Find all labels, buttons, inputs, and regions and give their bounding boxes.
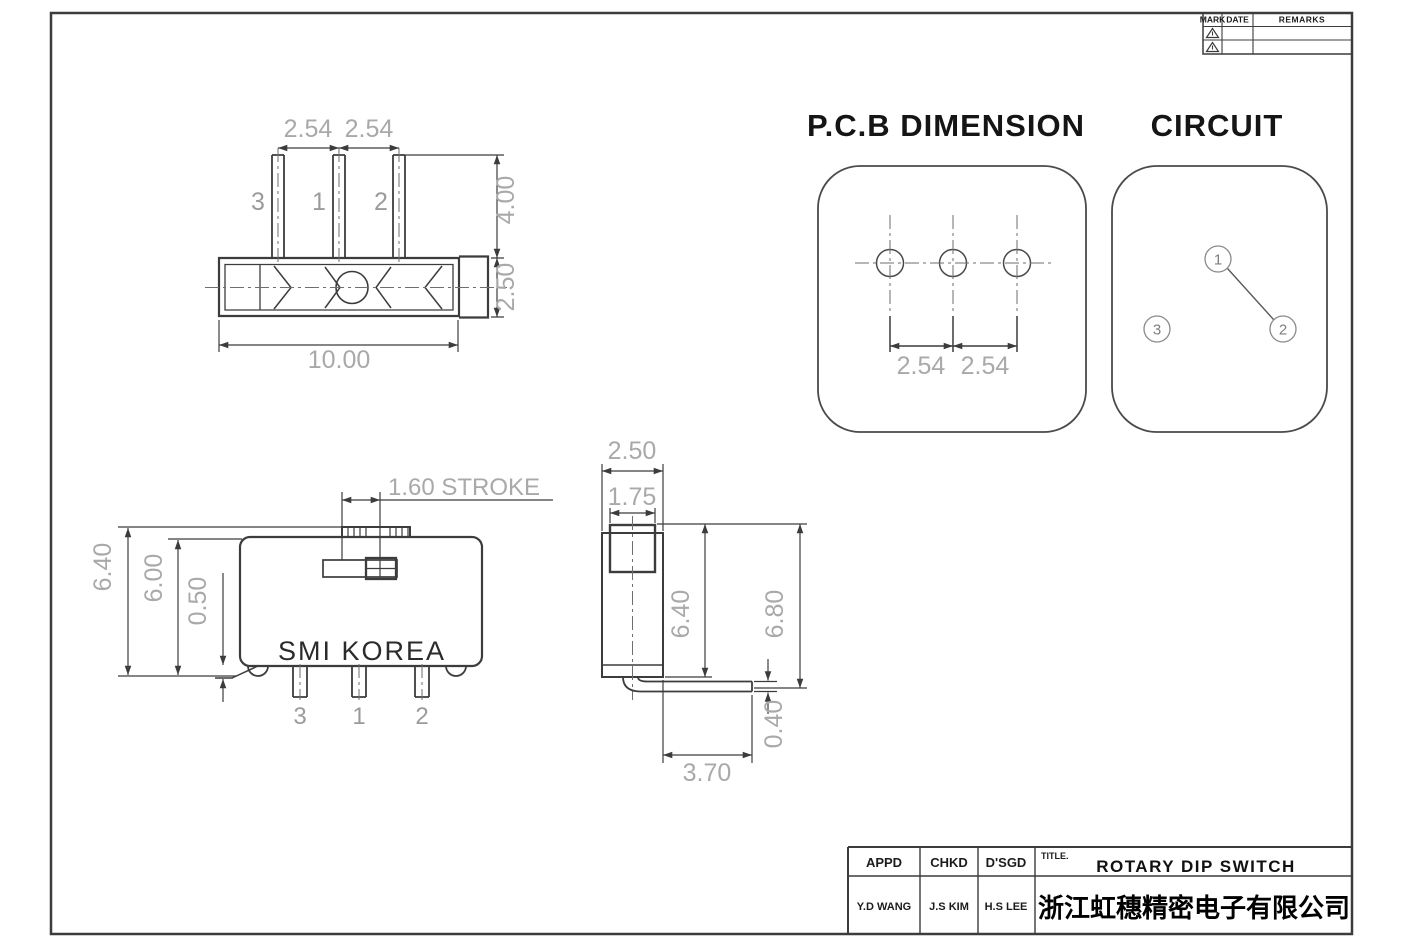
pin-label-3: 3 [251,188,265,216]
front-pin-label-2: 2 [415,703,428,730]
circuit-outline [1112,166,1327,432]
appd-label: APPD [866,855,902,870]
chkd-label: CHKD [930,855,968,870]
pcb-outline [818,166,1086,432]
circuit-title: CIRCUIT [1151,108,1284,143]
dim-side-height: 6.40 [667,590,695,639]
pcb-centerlines [855,215,1052,314]
brand-text: SMI KOREA [278,636,446,666]
dim-pitch-left: 2.54 [284,115,333,143]
dim-standoff: 0.50 [184,577,212,626]
revision-triangle-icon [1207,43,1219,52]
side-view: 2.50 1.75 6.40 6.80 0.40 3.70 [602,437,807,787]
front-pin-label-3: 3 [293,703,306,730]
dim-knob-width: 1.75 [608,483,657,511]
appd-name: Y.D WANG [857,901,911,913]
front-pin-label-1: 1 [352,703,365,730]
title-label: TITLE. [1041,851,1069,861]
pin-label-1: 1 [312,188,326,216]
rev-col-mark: MARK [1200,15,1226,25]
front-bottom-notches [248,666,466,676]
pcb-pitch-left: 2.54 [897,352,946,380]
sheet-border [51,13,1352,934]
dim-pitch-right: 2.54 [345,115,394,143]
dim-thickness: 2.50 [492,263,520,312]
front-pins [293,666,429,697]
dim-pin-height: 4.00 [492,176,520,225]
dim-pin-length: 3.70 [683,759,732,787]
dim-stroke: 1.60 STROKE [388,474,540,501]
chkd-name: J.S KIM [929,901,969,913]
drawing-sheet: MARK DATE REMARKS 2.54 2.54 3 1 2 4.00 2… [0,0,1407,944]
dsgd-label: D'SGD [986,855,1027,870]
dim-width: 10.00 [308,346,371,374]
terminal-1: 1 [1214,252,1222,269]
pcb-dimension-view: P.C.B DIMENSION 2.54 2.54 [807,108,1086,432]
top-view-centerlines [205,148,507,288]
side-pin-bend [623,677,752,692]
company-name: 浙江虹穗精密电子有限公司 [1038,893,1350,923]
dim-pin-thickness: 0.40 [760,700,788,749]
rev-col-remarks: REMARKS [1279,15,1325,25]
front-knob [342,527,410,537]
pcb-title: P.C.B DIMENSION [807,108,1085,143]
revision-triangle-icon [1207,29,1219,38]
dim-body-height: 6.00 [140,554,168,603]
front-view: SMI KOREA 1.60 STROKE 6.40 6.00 0.50 3 1… [89,474,553,730]
circuit-view: CIRCUIT 1 3 2 [1112,108,1327,432]
dim-side-width: 2.50 [608,437,657,465]
dsgd-name: H.S LEE [985,901,1028,913]
terminal-2: 2 [1279,322,1287,339]
title-block: APPD CHKD D'SGD TITLE. ROTARY DIP SWITCH… [848,847,1352,935]
drawing-title: ROTARY DIP SWITCH [1096,857,1296,876]
pin-label-2: 2 [374,188,388,216]
pcb-pitch-right: 2.54 [961,352,1010,380]
front-knob-ridges [348,527,408,536]
dim-total-height: 6.40 [89,543,117,592]
dim-side-total-height: 6.80 [761,590,789,639]
circuit-switch-line [1228,269,1274,320]
drawing-canvas: MARK DATE REMARKS 2.54 2.54 3 1 2 4.00 2… [0,0,1407,944]
front-pin-centerlines [300,664,422,700]
top-view: 2.54 2.54 3 1 2 4.00 2.50 10.00 [205,115,520,374]
revision-table: MARK DATE REMARKS [1200,13,1352,54]
terminal-3: 3 [1153,322,1161,339]
rev-col-date: DATE [1226,15,1249,25]
top-view-ext-lines [219,155,504,352]
